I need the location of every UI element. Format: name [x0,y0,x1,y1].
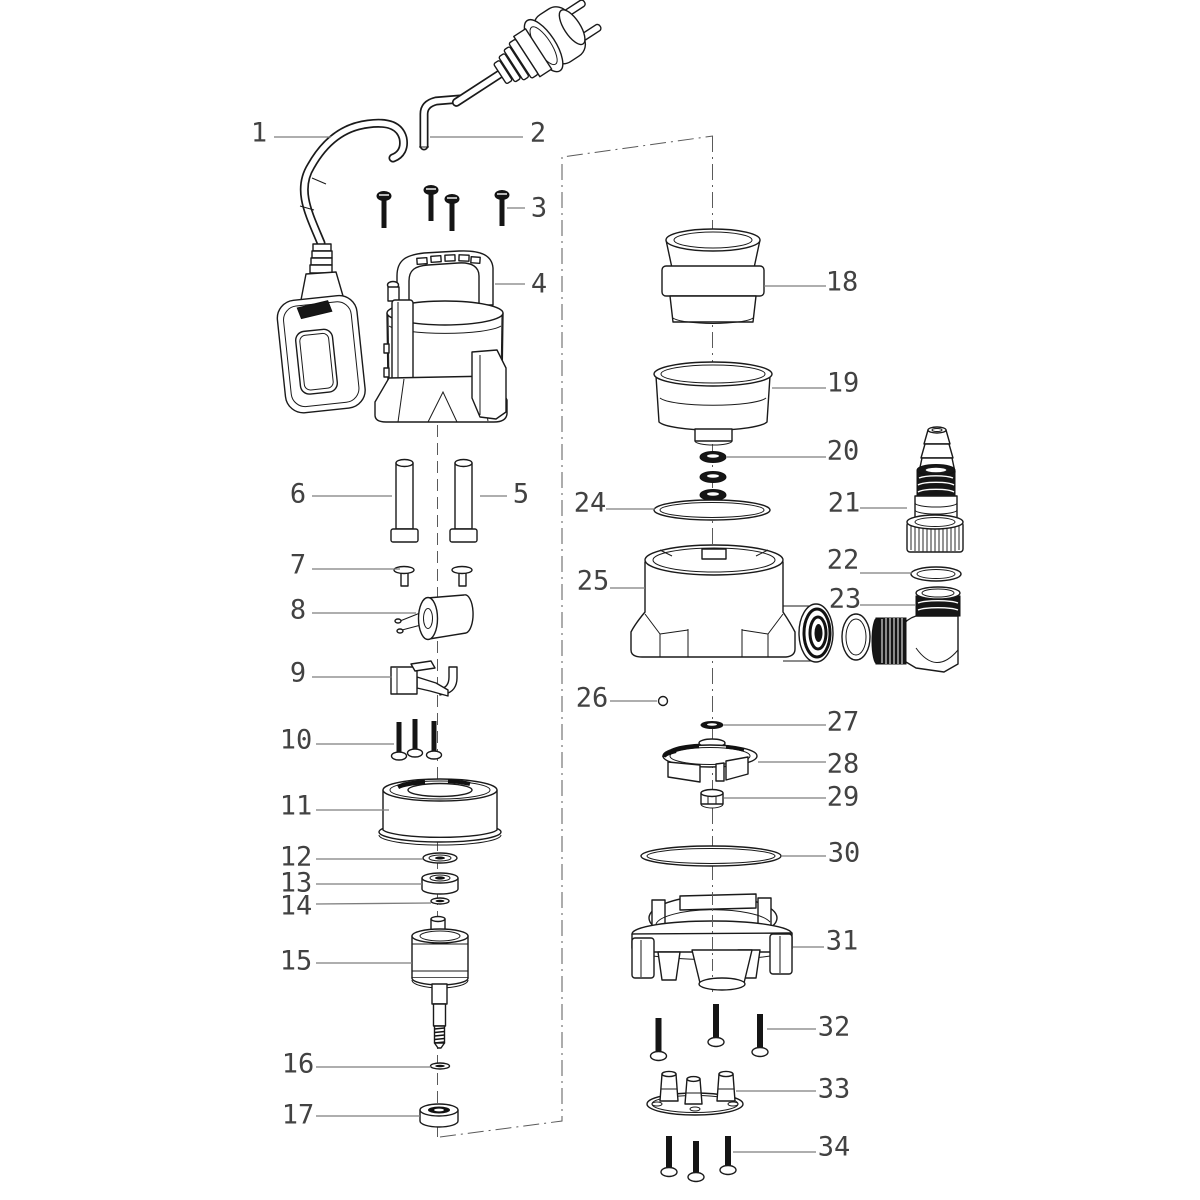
callout-6-guide-pin-left: 6 [290,479,306,510]
callout-28-impeller: 28 [827,749,860,780]
callout-16-shaft-washer: 16 [282,1049,315,1080]
callout-20-o-ring-set: 20 [827,436,860,467]
callout-30-base-o-ring: 30 [828,838,861,869]
callout-17-mechanical-seal: 17 [282,1100,315,1131]
callout-18-stepped-hose-adapter: 18 [826,267,859,298]
callout-1-float-switch-with-cable: 1 [251,118,267,149]
callout-23-elbow-fitting: 23 [829,584,862,615]
base-o-ring [641,846,781,866]
foot-plate [647,1071,743,1115]
post [685,1077,702,1104]
switch-bracket [391,661,457,696]
callout-33-foot-plate: 33 [818,1074,851,1105]
leader-line-14 [316,903,431,904]
valve-ball [659,697,668,706]
impeller-washer [701,721,724,729]
callout-14-small-washer: 14 [280,891,313,922]
power-cord-with-plug [419,0,609,147]
screw [495,191,509,227]
callout-10-motor-screws: 10 [280,725,313,756]
capacitor [395,595,473,640]
post [717,1071,735,1101]
callout-22-flat-gasket: 22 [827,545,860,576]
exploded-parts-diagram: 1234567891011121314151617181920212223242… [0,0,1200,1200]
callout-34-base-screws-lower: 34 [818,1132,851,1163]
push-rivets [394,567,472,587]
callout-27-impeller-washer: 27 [827,707,860,738]
diagram-canvas: 1234567891011121314151617181920212223242… [0,0,1200,1200]
bearing [422,873,458,894]
callout-26-valve-ball: 26 [576,683,609,714]
callout-9-switch-bracket: 9 [290,658,306,689]
callout-8-capacitor: 8 [290,595,306,626]
guide-pin-right [450,460,477,543]
outlet-connector-cup [654,362,772,445]
rotor-with-shaft [412,917,468,1049]
post [660,1071,678,1101]
callout-19-outlet-connector-cup: 19 [827,368,860,399]
callout-15-rotor-with-shaft: 15 [280,946,313,977]
callout-21-hose-connector-with-nut: 21 [828,488,861,519]
callout-11-stator-housing: 11 [280,791,313,822]
screw [377,192,391,229]
base-screws-upper [651,1004,769,1061]
callout-25-pump-volute-housing: 25 [577,566,610,597]
callout-32-base-screws-upper: 32 [818,1012,851,1043]
impeller [663,739,757,782]
callout-31-pump-base: 31 [826,926,859,957]
small-washer [431,898,449,904]
callout-2-power-cord-with-plug: 2 [530,118,546,149]
motor-screws [392,719,442,760]
o-ring-set [700,452,726,501]
top-cover-screws [377,186,509,232]
callout-5-guide-pin-right: 5 [513,479,529,510]
callout-4-pump-housing-with-handle: 4 [531,269,547,300]
pump-volute-housing [631,545,833,662]
elbow-fitting [872,587,960,672]
callout-3-top-cover-screws: 3 [531,193,547,224]
large-o-ring [654,500,770,520]
callout-29-impeller-nut: 29 [827,782,860,813]
guide-pin-left [391,460,418,543]
screw [445,195,459,232]
pump-housing-with-handle [375,251,507,422]
shaft-washer [431,1063,450,1069]
callout-24-large-o-ring: 24 [574,488,607,519]
base-screws-lower [661,1136,736,1182]
pump-base [632,893,792,990]
stepped-hose-adapter [662,229,764,323]
impeller-nut [701,790,723,808]
stator-housing [379,779,501,845]
mechanical-seal [420,1104,458,1127]
outlet-o-ring [842,614,870,660]
callout-7-push-rivets: 7 [290,550,306,581]
screw [424,186,438,222]
flat-gasket [911,567,961,581]
hose-connector-with-nut [907,427,963,552]
washer [423,853,457,863]
